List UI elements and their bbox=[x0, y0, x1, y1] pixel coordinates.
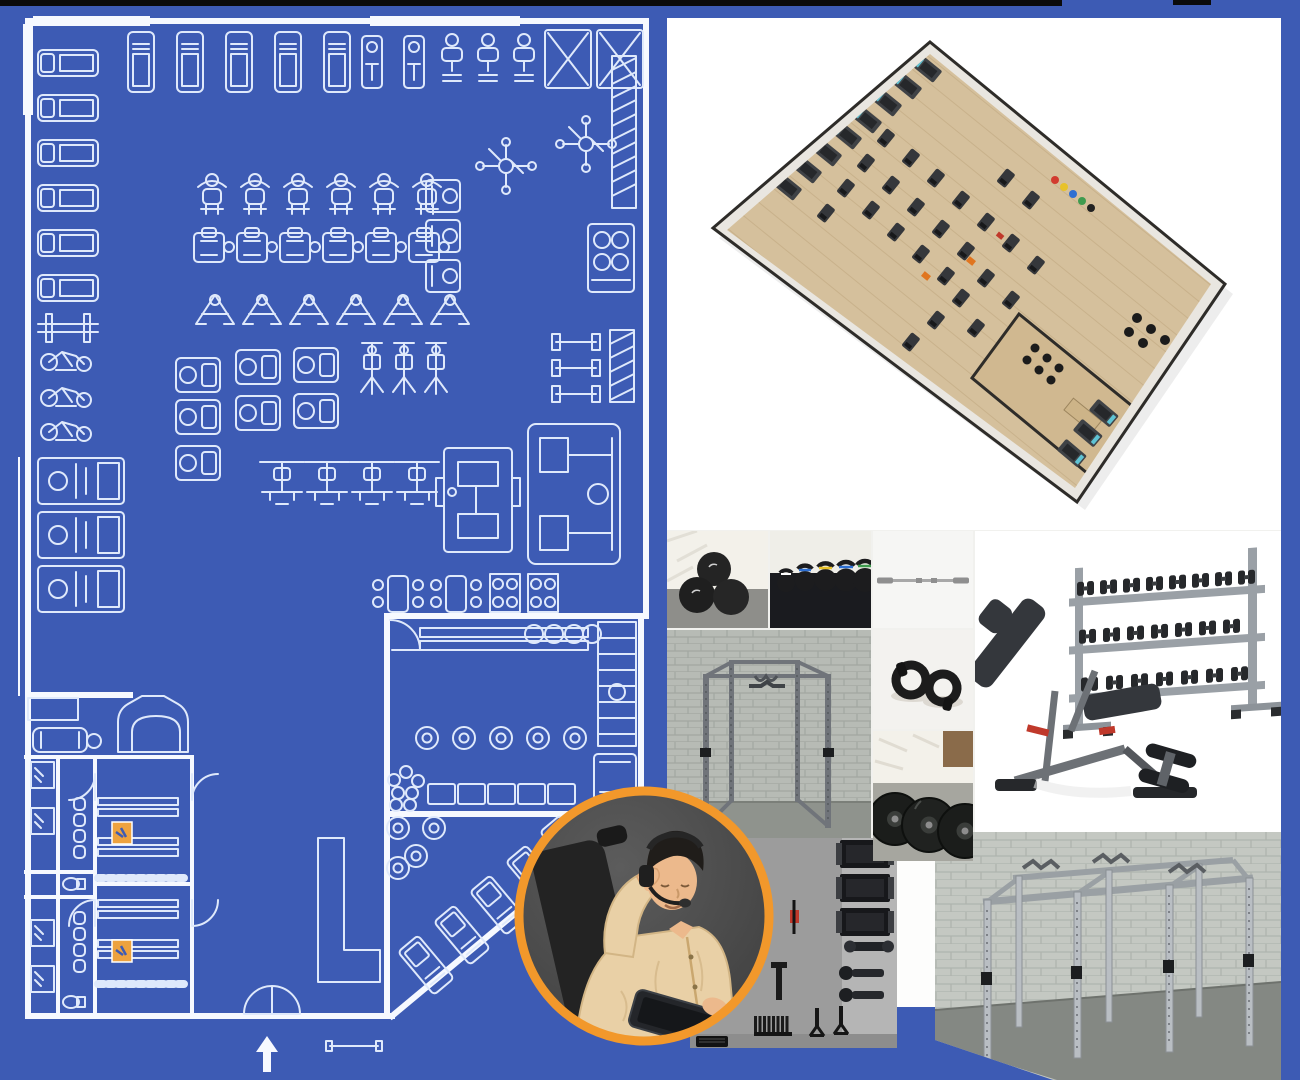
blueprint-orange-markers bbox=[112, 822, 132, 962]
product-tile-bumper-plates bbox=[873, 731, 973, 861]
hatched-wall-strip bbox=[610, 56, 636, 402]
reception-desk-glyph bbox=[318, 838, 380, 982]
cable-cross-glyph bbox=[476, 138, 536, 194]
support-agent-photo bbox=[509, 781, 779, 1051]
top-black-bar bbox=[0, 0, 1062, 6]
product-tile-dumbbell-rack-bench bbox=[975, 531, 1281, 832]
product-tile-barbell bbox=[873, 531, 973, 628]
locker-room-walls bbox=[26, 757, 192, 1016]
product-tile-slam-balls bbox=[667, 531, 768, 628]
entrance-arrow-icon bbox=[256, 1036, 278, 1072]
collage-canvas bbox=[0, 0, 1300, 1080]
squat-cage-glyph bbox=[436, 448, 520, 552]
plate-rack-glyph bbox=[490, 574, 558, 612]
plate-tree-glyph bbox=[588, 224, 634, 292]
product-tile-collars bbox=[873, 630, 973, 729]
rig-render bbox=[897, 832, 1281, 1080]
functional-trainer-glyph bbox=[528, 424, 620, 564]
stairs-glyph bbox=[598, 622, 636, 746]
floorplan-3d-render bbox=[667, 18, 1281, 530]
product-tile-kettlebells bbox=[770, 531, 871, 628]
cable-cross-glyph bbox=[556, 116, 616, 172]
sauna-glyph bbox=[118, 696, 188, 752]
couch-glyph bbox=[33, 728, 101, 752]
top-black-bar-segment bbox=[1173, 0, 1211, 5]
